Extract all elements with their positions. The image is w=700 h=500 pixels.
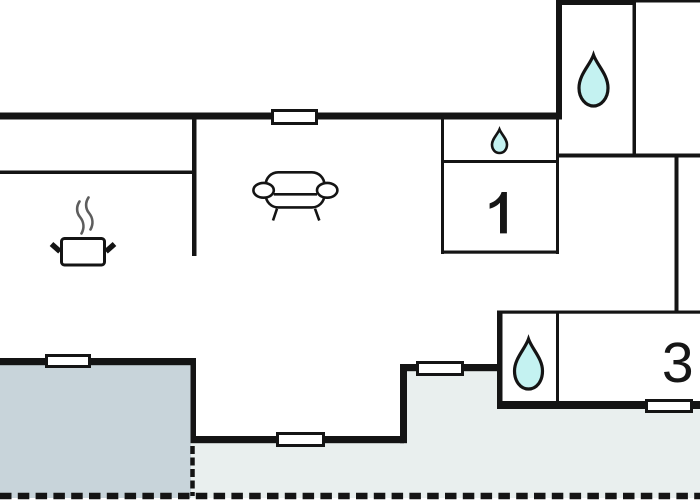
svg-text:3: 3 <box>662 331 694 395</box>
